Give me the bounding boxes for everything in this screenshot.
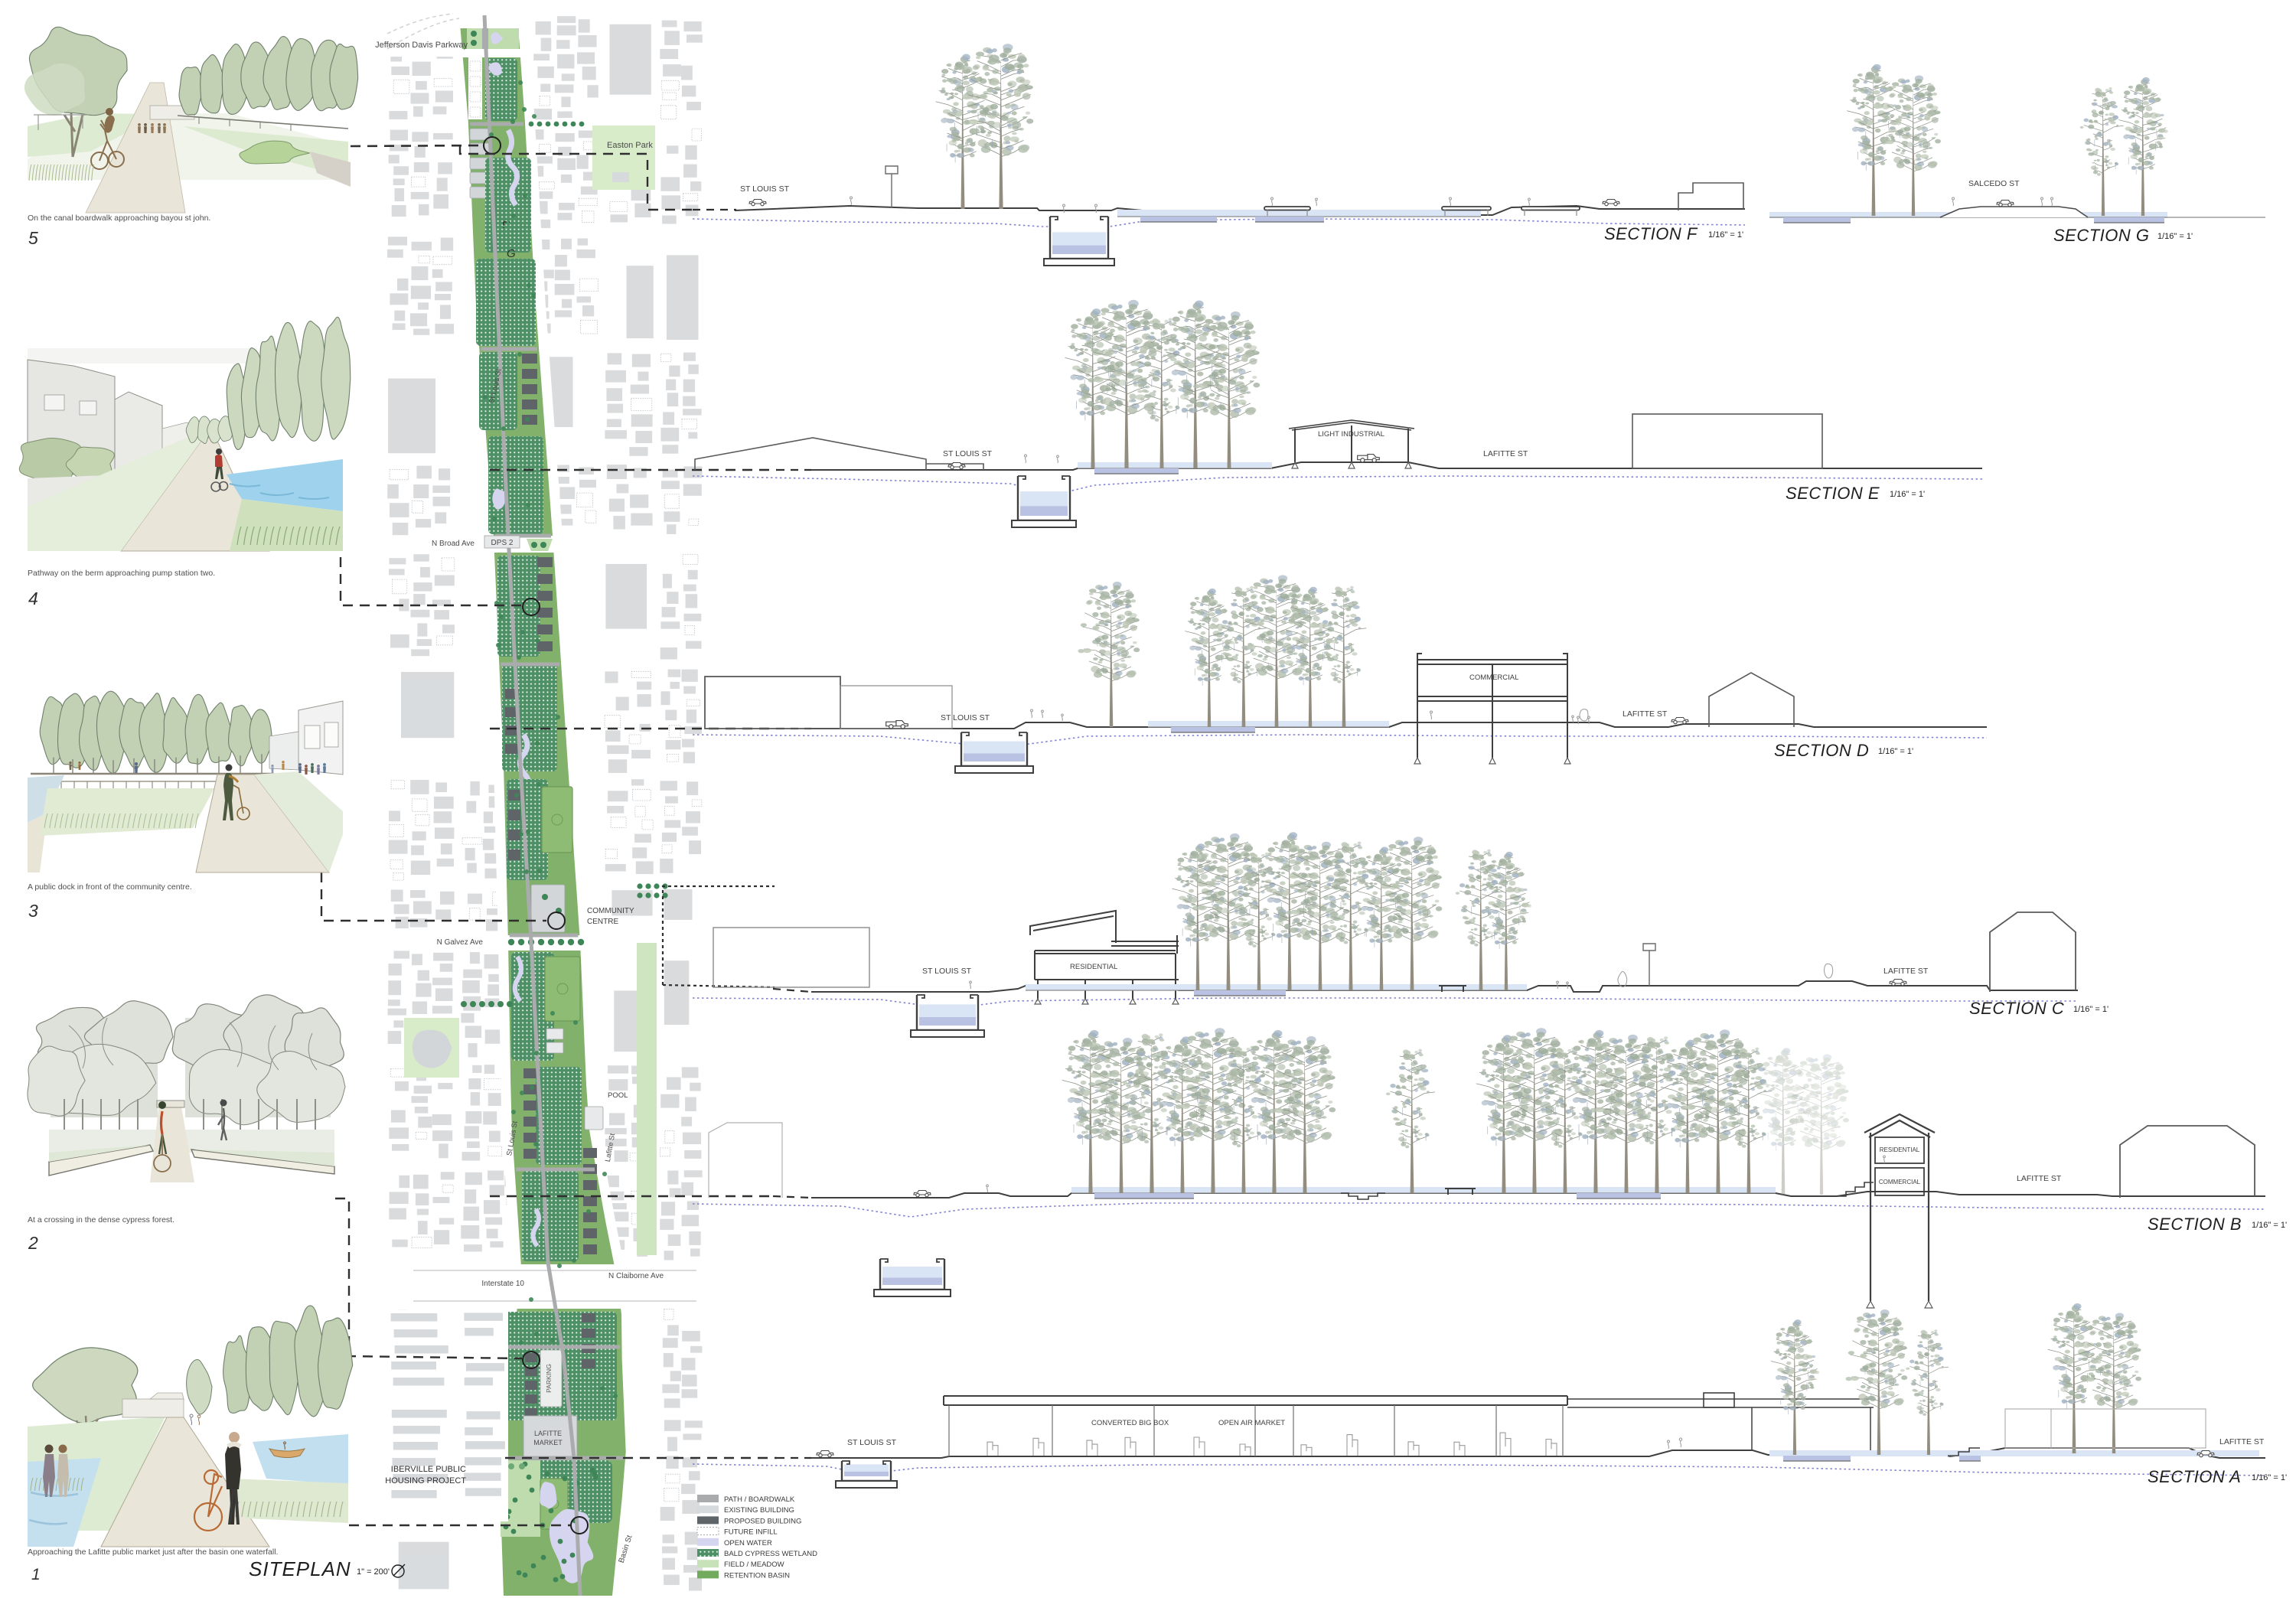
svg-text:LAFITTE ST: LAFITTE ST bbox=[1883, 967, 1929, 976]
svg-text:CONVERTED BIG BOX: CONVERTED BIG BOX bbox=[1091, 1419, 1169, 1427]
svg-text:Interstate 10: Interstate 10 bbox=[481, 1280, 524, 1288]
svg-text:1" = 200': 1" = 200' bbox=[357, 1567, 390, 1577]
svg-text:FIELD / MEADOW: FIELD / MEADOW bbox=[724, 1560, 784, 1569]
svg-text:1/16" = 1': 1/16" = 1' bbox=[2073, 1005, 2108, 1014]
svg-text:PARKING: PARKING bbox=[545, 1364, 553, 1393]
svg-text:OPEN WATER: OPEN WATER bbox=[724, 1539, 772, 1547]
svg-text:SECTION F: SECTION F bbox=[1604, 224, 1698, 243]
svg-text:LAFITTE ST: LAFITTE ST bbox=[1483, 449, 1528, 458]
svg-text:1/16" = 1': 1/16" = 1' bbox=[1708, 230, 1743, 240]
svg-text:1/16" = 1': 1/16" = 1' bbox=[2157, 232, 2193, 241]
svg-text:LAFITTE: LAFITTE bbox=[534, 1430, 562, 1437]
svg-text:1/16" = 1': 1/16" = 1' bbox=[2252, 1473, 2287, 1482]
svg-text:PATH / BOARDWALK: PATH / BOARDWALK bbox=[724, 1495, 795, 1504]
svg-text:1: 1 bbox=[31, 1566, 41, 1583]
svg-text:Approaching the Lafitte public: Approaching the Lafitte public market ju… bbox=[28, 1547, 278, 1557]
svg-text:N Broad Ave: N Broad Ave bbox=[432, 540, 475, 548]
svg-text:ST LOUIS ST: ST LOUIS ST bbox=[847, 1438, 897, 1447]
svg-text:EXISTING BUILDING: EXISTING BUILDING bbox=[724, 1506, 794, 1515]
svg-text:RESIDENTIAL: RESIDENTIAL bbox=[1880, 1146, 1920, 1153]
svg-text:SALCEDO ST: SALCEDO ST bbox=[1968, 179, 2020, 188]
svg-text:ST LOUIS ST: ST LOUIS ST bbox=[922, 967, 972, 976]
svg-text:IBERVILLE PUBLIC: IBERVILLE PUBLIC bbox=[391, 1465, 466, 1474]
svg-text:MARKET: MARKET bbox=[533, 1439, 563, 1446]
svg-text:SITEPLAN: SITEPLAN bbox=[249, 1557, 351, 1580]
svg-text:G: G bbox=[507, 247, 516, 260]
svg-text:SECTION G: SECTION G bbox=[2053, 226, 2150, 245]
svg-text:COMMERCIAL: COMMERCIAL bbox=[1879, 1179, 1921, 1185]
svg-text:ST LOUIS ST: ST LOUIS ST bbox=[941, 713, 990, 722]
svg-text:At a crossing in the dense cyp: At a crossing in the dense cypress fores… bbox=[28, 1215, 174, 1225]
svg-text:COMMERCIAL: COMMERCIAL bbox=[1469, 673, 1518, 682]
svg-text:2: 2 bbox=[28, 1233, 38, 1253]
svg-text:COMMUNITY: COMMUNITY bbox=[587, 907, 634, 915]
svg-text:LAFITTE ST: LAFITTE ST bbox=[1623, 709, 1668, 719]
svg-text:CENTRE: CENTRE bbox=[587, 918, 618, 926]
svg-text:1/16" = 1': 1/16" = 1' bbox=[1878, 747, 1913, 756]
svg-text:RESIDENTIAL: RESIDENTIAL bbox=[1070, 963, 1117, 971]
svg-text:SECTION E: SECTION E bbox=[1786, 484, 1880, 503]
svg-text:ST LOUIS ST: ST LOUIS ST bbox=[740, 184, 790, 194]
svg-text:SECTION A: SECTION A bbox=[2148, 1467, 2241, 1486]
svg-text:RETENTION BASIN: RETENTION BASIN bbox=[724, 1571, 790, 1580]
svg-text:5: 5 bbox=[28, 228, 38, 248]
svg-text:1/16" = 1': 1/16" = 1' bbox=[2252, 1221, 2287, 1230]
svg-text:Pathway on the berm approachin: Pathway on the berm approaching pump sta… bbox=[28, 569, 215, 578]
svg-text:LAFITTE ST: LAFITTE ST bbox=[2017, 1174, 2062, 1183]
svg-text:LIGHT INDUSTRIAL: LIGHT INDUSTRIAL bbox=[1318, 430, 1384, 439]
svg-text:POOL: POOL bbox=[608, 1091, 628, 1100]
svg-text:PROPOSED BUILDING: PROPOSED BUILDING bbox=[724, 1517, 801, 1525]
svg-text:SECTION B: SECTION B bbox=[2148, 1215, 2242, 1234]
svg-text:1/16" = 1': 1/16" = 1' bbox=[1890, 490, 1925, 499]
svg-text:HOUSING PROJECT: HOUSING PROJECT bbox=[385, 1476, 466, 1485]
svg-text:DPS 2: DPS 2 bbox=[491, 539, 514, 547]
svg-text:OPEN AIR MARKET: OPEN AIR MARKET bbox=[1218, 1419, 1285, 1427]
svg-text:N Claiborne Ave: N Claiborne Ave bbox=[608, 1272, 664, 1280]
svg-text:Easton Park: Easton Park bbox=[607, 141, 653, 150]
svg-text:FUTURE INFILL: FUTURE INFILL bbox=[724, 1528, 778, 1537]
svg-text:Jefferson Davis Parkway: Jefferson Davis Parkway bbox=[375, 41, 468, 50]
svg-text:ST LOUIS ST: ST LOUIS ST bbox=[943, 449, 993, 458]
svg-text:SECTION D: SECTION D bbox=[1774, 741, 1869, 760]
svg-text:SECTION C: SECTION C bbox=[1969, 999, 2064, 1018]
svg-text:LAFITTE ST: LAFITTE ST bbox=[2219, 1437, 2265, 1446]
svg-text:4: 4 bbox=[28, 589, 38, 608]
svg-text:N Galvez Ave: N Galvez Ave bbox=[437, 938, 484, 947]
svg-text:On the canal boardwalk approac: On the canal boardwalk approaching bayou… bbox=[28, 214, 210, 223]
svg-text:A public dock in front of the: A public dock in front of the community … bbox=[28, 882, 192, 892]
svg-text:3: 3 bbox=[28, 901, 38, 921]
svg-text:BALD CYPRESS WETLAND: BALD CYPRESS WETLAND bbox=[724, 1550, 817, 1558]
